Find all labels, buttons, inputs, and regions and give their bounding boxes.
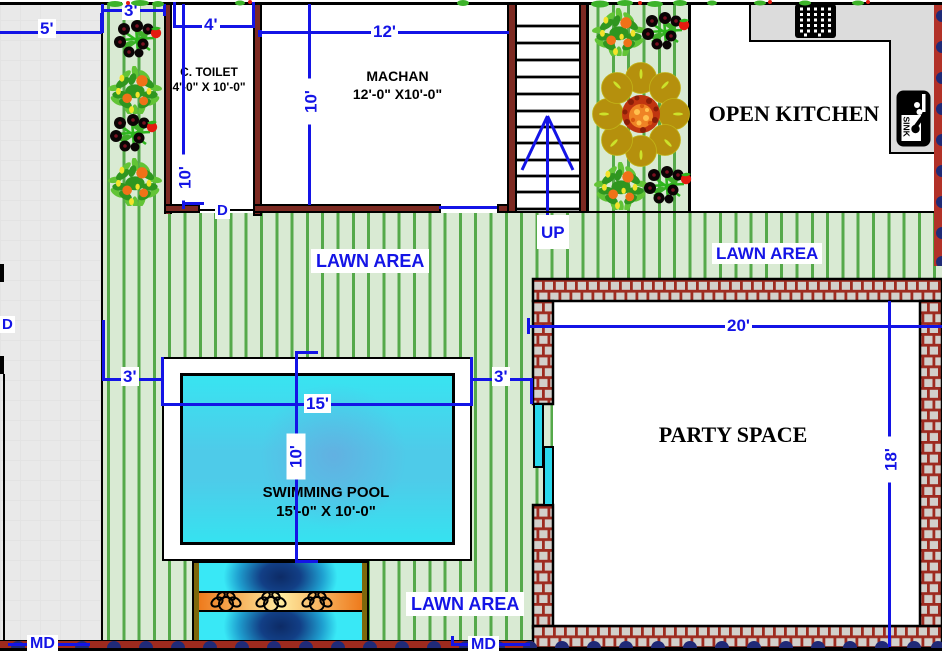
- svg-text:SINK: SINK: [902, 117, 912, 138]
